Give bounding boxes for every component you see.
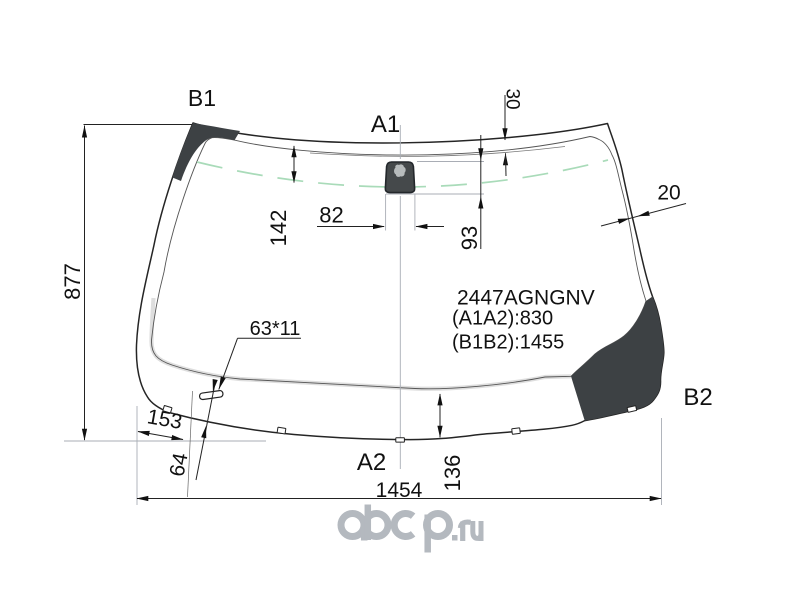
svg-text:A2: A2: [357, 449, 386, 476]
svg-text:82: 82: [319, 203, 343, 228]
svg-text:63*11: 63*11: [250, 318, 301, 340]
svg-text:B2: B2: [683, 384, 712, 411]
svg-text:64: 64: [166, 451, 193, 479]
svg-text:A1: A1: [371, 111, 400, 138]
svg-text:B1: B1: [188, 85, 216, 111]
svg-text:(A1A2):830: (A1A2):830: [452, 308, 553, 330]
svg-text:1454: 1454: [376, 479, 423, 502]
svg-text:20: 20: [657, 182, 680, 205]
svg-text:877: 877: [60, 263, 85, 300]
svg-text:136: 136: [440, 455, 465, 492]
svg-text:(B1B2):1455: (B1B2):1455: [452, 332, 564, 354]
svg-text:142: 142: [266, 210, 291, 247]
svg-text:93: 93: [457, 226, 482, 250]
svg-text:2447AGNGNV: 2447AGNGNV: [457, 287, 595, 310]
svg-text:30: 30: [502, 88, 523, 109]
